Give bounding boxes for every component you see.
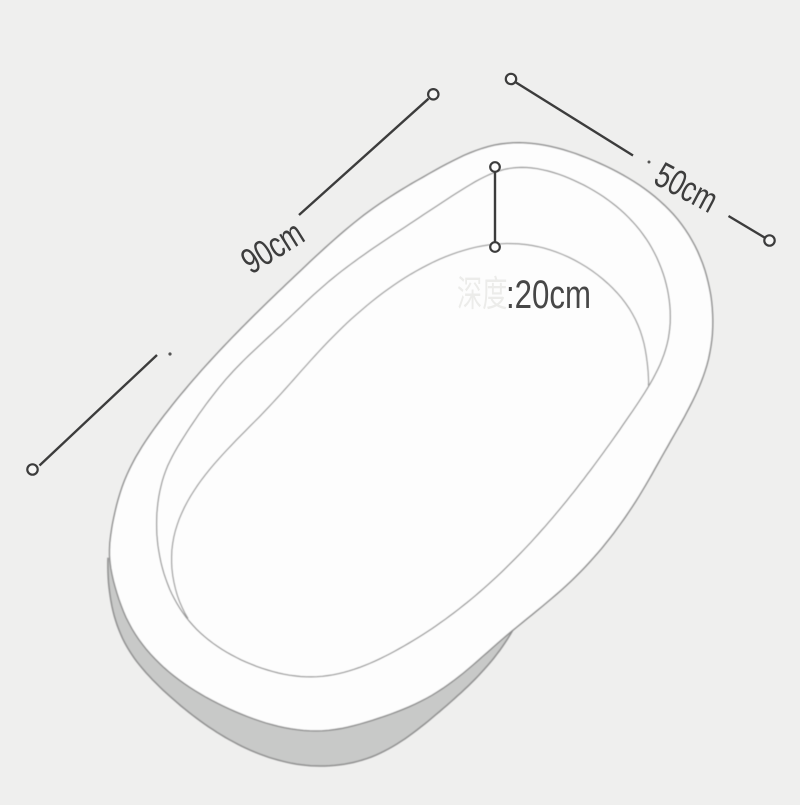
svg-text:深度: 深度 — [457, 274, 507, 315]
svg-text::20cm: :20cm — [506, 272, 591, 317]
